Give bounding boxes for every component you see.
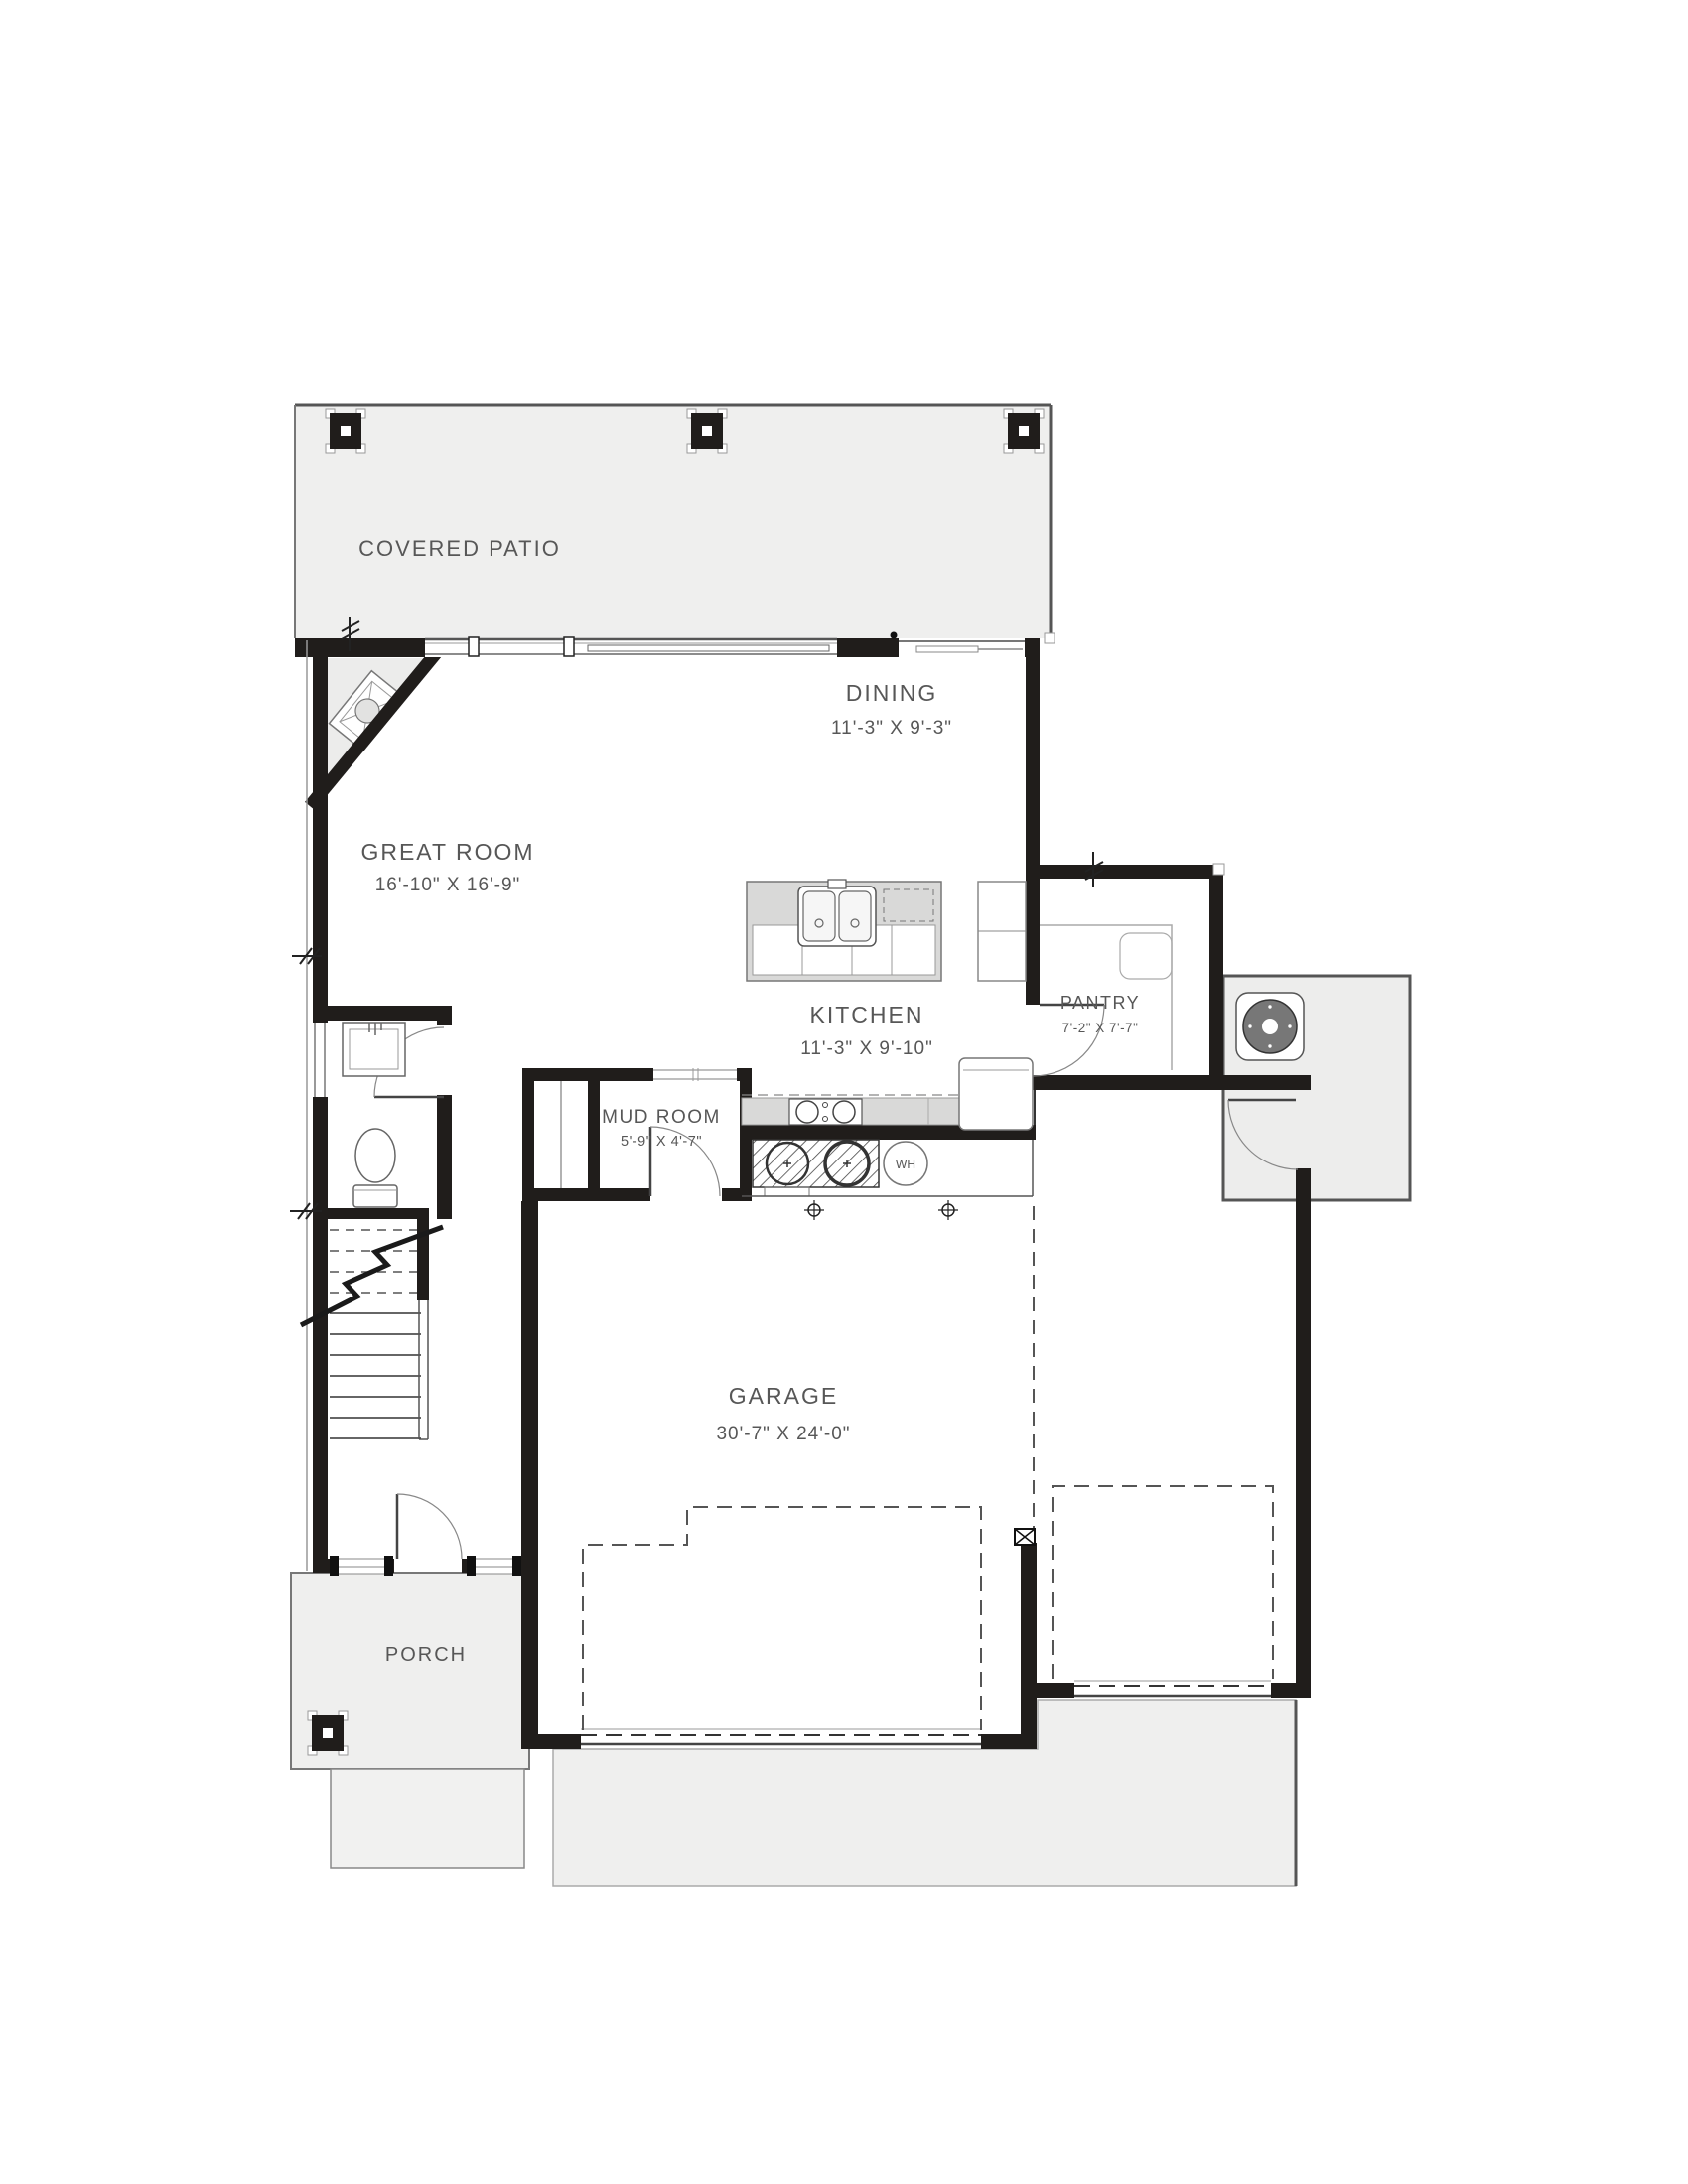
drain-pan: [765, 1187, 809, 1196]
post-anchor-marker: [1015, 1529, 1035, 1545]
porch-post: [308, 1711, 348, 1755]
floor-drain-1: [804, 1200, 824, 1220]
mudroom-cased-opening: [653, 1068, 737, 1081]
refrigerator: [959, 1058, 1033, 1130]
floor-plan-drawing: WH: [0, 0, 1688, 2184]
pantry-door: [1033, 1005, 1104, 1076]
parking-outline-1car: [1053, 1486, 1273, 1679]
corner-tick-pantry: [1213, 864, 1224, 875]
patio-post-left: [326, 409, 365, 453]
pantry-label: PANTRY: [1060, 993, 1140, 1013]
covered-patio-label: COVERED PATIO: [358, 536, 561, 561]
garage-dims: 30'-7" X 24'-0": [716, 1424, 850, 1444]
porch-label: PORCH: [385, 1644, 467, 1666]
patio-sliding-door: [425, 637, 837, 657]
pantry-dims: 7'-2" X 7'-7": [1062, 1021, 1139, 1035]
island-double-sink: [798, 880, 876, 946]
great-room-dims: 16'-10" X 16'-9": [375, 875, 521, 895]
laundry-alcove: WH: [742, 1140, 1033, 1196]
kitchen-tall-cabinet: [978, 882, 1026, 981]
parking-outline-2car: [583, 1507, 981, 1730]
island-faucet: [828, 880, 846, 888]
powder-window: [311, 1023, 330, 1097]
dashed-lines: [581, 1206, 1273, 1744]
patio-post-center: [687, 409, 727, 453]
mud-room-label: MUD ROOM: [602, 1107, 721, 1128]
powder-vanity: [343, 1023, 405, 1076]
garage-label: GARAGE: [729, 1383, 838, 1409]
stair-railing: [419, 1300, 428, 1439]
driveway: [553, 1700, 1296, 1886]
kitchen-dims: 11'-3" X 9'-10": [800, 1038, 933, 1059]
dining-dims: 11'-3" X 9'-3": [831, 718, 952, 739]
floor-plan-page: WH: [0, 0, 1688, 2184]
kitchen-label: KITCHEN: [810, 1002, 924, 1027]
patio-post-right: [1004, 409, 1044, 453]
dining-label: DINING: [846, 680, 938, 706]
mud-room-dims: 5'-9" X 4'-7": [621, 1134, 702, 1150]
range-cooktop: [789, 1099, 862, 1125]
front-door: [397, 1494, 462, 1559]
porch-step: [331, 1769, 524, 1868]
wall-point-marker: [891, 632, 898, 639]
kitchen-island: [747, 880, 941, 981]
corner-fireplace: [310, 647, 441, 806]
corner-tick-ne: [1045, 633, 1055, 643]
ac-condenser-unit: [1236, 993, 1304, 1060]
great-room-label: GREAT ROOM: [360, 839, 534, 865]
powder-toilet: [353, 1129, 397, 1207]
covered-patio-slab: [295, 405, 1051, 638]
floor-drain-2: [938, 1200, 958, 1220]
water-heater-label: WH: [896, 1158, 915, 1171]
